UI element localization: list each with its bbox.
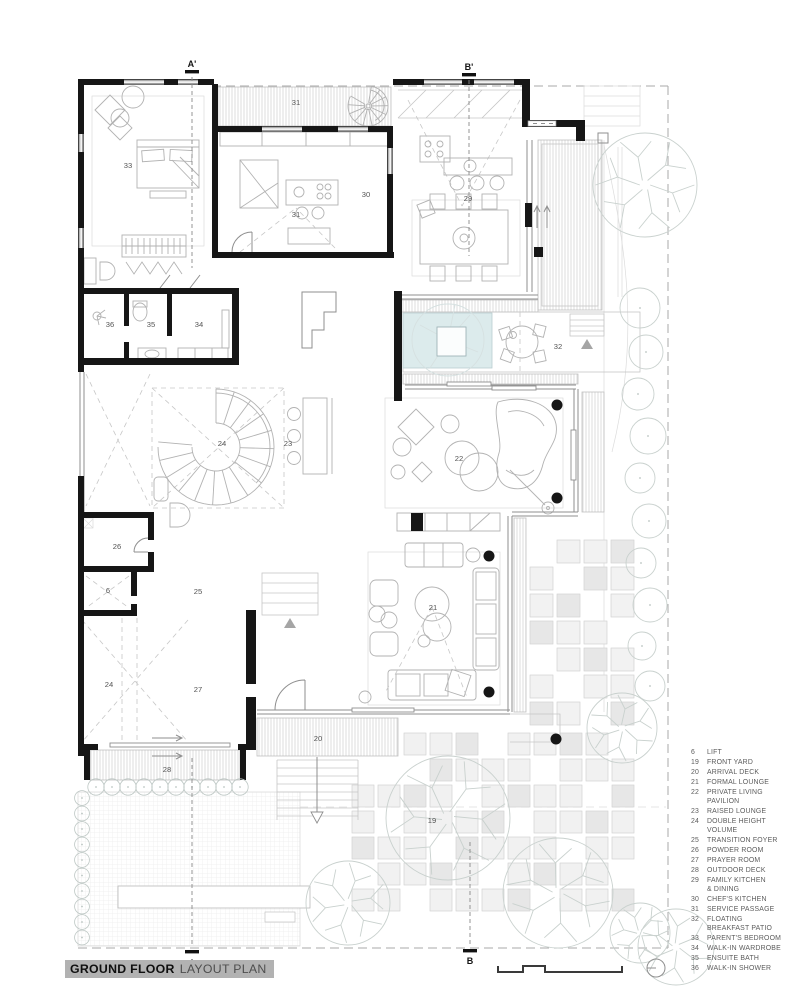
floating-steps bbox=[302, 292, 336, 348]
room-label-30: 30 bbox=[362, 190, 370, 199]
spiral-stairs bbox=[158, 86, 388, 505]
room-label-21: 21 bbox=[429, 603, 437, 612]
legend-item-label: ARRIVAL DECK bbox=[707, 768, 793, 777]
legend-item: 19FRONT YARD bbox=[691, 758, 793, 767]
legend-item: 24DOUBLE HEIGHT VOLUME bbox=[691, 817, 793, 836]
legend-item: 33PARENT'S BEDROOM bbox=[691, 934, 793, 943]
section-letter: B' bbox=[465, 62, 474, 72]
legend-item-label: WALK-IN SHOWER bbox=[707, 964, 793, 973]
room-label-27: 27 bbox=[194, 685, 202, 694]
legend-item-number: 27 bbox=[691, 856, 707, 865]
room-label-24: 24 bbox=[105, 680, 113, 689]
room-label-25: 25 bbox=[194, 587, 202, 596]
room-label-29: 29 bbox=[464, 194, 472, 203]
legend-item-number: 29 bbox=[691, 876, 707, 895]
legend-item-number: 33 bbox=[691, 934, 707, 943]
title-bar: GROUND FLOOR LAYOUT PLAN bbox=[65, 960, 274, 978]
title-bold: GROUND FLOOR bbox=[70, 962, 175, 976]
room-labels: 3331303129363534322423222662521242728201… bbox=[105, 98, 562, 825]
legend-item: 26POWDER ROOM bbox=[691, 846, 793, 855]
legend-item-number: 30 bbox=[691, 895, 707, 904]
legend-item-number: 34 bbox=[691, 944, 707, 953]
legend-item-label: POWDER ROOM bbox=[707, 846, 793, 855]
legend-item: 36WALK-IN SHOWER bbox=[691, 964, 793, 973]
legend-item: 34WALK-IN WARDROBE bbox=[691, 944, 793, 953]
legend-item-label: DOUBLE HEIGHT VOLUME bbox=[707, 817, 793, 836]
legend-item-label: OUTDOOR DECK bbox=[707, 866, 793, 875]
legend-item-number: 6 bbox=[691, 748, 707, 757]
furniture bbox=[82, 86, 563, 744]
legend-item-number: 28 bbox=[691, 866, 707, 875]
breakfast-patio bbox=[403, 304, 640, 376]
legend-item-number: 32 bbox=[691, 915, 707, 934]
room-label-20: 20 bbox=[314, 734, 322, 743]
legend-item: 35ENSUITE BATH bbox=[691, 954, 793, 963]
legend-item: 32FLOATING BREAKFAST PATIO bbox=[691, 915, 793, 934]
section-letter: B bbox=[467, 956, 474, 966]
legend-item-number: 22 bbox=[691, 788, 707, 807]
legend-item-label: TRANSITION FOYER bbox=[707, 836, 793, 845]
living-pavilion-furniture bbox=[385, 398, 563, 531]
legend-item: 31SERVICE PASSAGE bbox=[691, 905, 793, 914]
room-label-35: 35 bbox=[147, 320, 155, 329]
room-label-22: 22 bbox=[455, 454, 463, 463]
section-bar bbox=[185, 950, 199, 953]
room-label-28: 28 bbox=[163, 765, 171, 774]
legend-item-label: RAISED LOUNGE bbox=[707, 807, 793, 816]
legend-item: 27PRAYER ROOM bbox=[691, 856, 793, 865]
legend-item: 23RAISED LOUNGE bbox=[691, 807, 793, 816]
legend-item-number: 25 bbox=[691, 836, 707, 845]
legend-item-number: 35 bbox=[691, 954, 707, 963]
legend-item-label: CHEF'S KITCHEN bbox=[707, 895, 793, 904]
legend-item-label: ENSUITE BATH bbox=[707, 954, 793, 963]
legend-item: 28OUTDOOR DECK bbox=[691, 866, 793, 875]
bath-fixtures bbox=[93, 301, 229, 361]
legend-item-number: 21 bbox=[691, 778, 707, 787]
room-label-34: 34 bbox=[195, 320, 203, 329]
floor-plan-sheet: 3331303129363534322423222662521242728201… bbox=[0, 0, 800, 1000]
legend-item-label: FLOATING BREAKFAST PATIO bbox=[707, 915, 793, 934]
tree-planter bbox=[437, 327, 466, 356]
legend-item-number: 31 bbox=[691, 905, 707, 914]
legend-item: 29FAMILY KITCHEN & DINING bbox=[691, 876, 793, 895]
legend-item-number: 19 bbox=[691, 758, 707, 767]
room-label-31: 31 bbox=[292, 98, 300, 107]
legend-item-label: FAMILY KITCHEN & DINING bbox=[707, 876, 793, 895]
legend-item-label: SERVICE PASSAGE bbox=[707, 905, 793, 914]
room-label-33: 33 bbox=[124, 161, 132, 170]
room-label-31: 31 bbox=[292, 210, 300, 219]
legend-item-label: PRIVATE LIVING PAVILION bbox=[707, 788, 793, 807]
scale-bar bbox=[498, 966, 622, 972]
legend-item-label: FORMAL LOUNGE bbox=[707, 778, 793, 787]
legend-item-label: PRAYER ROOM bbox=[707, 856, 793, 865]
room-label-32: 32 bbox=[554, 342, 562, 351]
section-letter: A' bbox=[188, 59, 197, 69]
patio-table bbox=[499, 324, 546, 363]
legend-item: 30CHEF'S KITCHEN bbox=[691, 895, 793, 904]
legend-item-number: 24 bbox=[691, 817, 707, 836]
floor-plan-drawing: 3331303129363534322423222662521242728201… bbox=[0, 0, 800, 1000]
legend-item-number: 36 bbox=[691, 964, 707, 973]
legend-item-label: LIFT bbox=[707, 748, 793, 757]
legend-item-label: FRONT YARD bbox=[707, 758, 793, 767]
room-label-36: 36 bbox=[106, 320, 114, 329]
legend-item: 21FORMAL LOUNGE bbox=[691, 778, 793, 787]
section-bar bbox=[462, 73, 476, 76]
bedroom-furniture bbox=[84, 86, 204, 284]
legend: 6LIFT19FRONT YARD20ARRIVAL DECK21FORMAL … bbox=[691, 748, 793, 973]
legend-item-number: 20 bbox=[691, 768, 707, 777]
legend-item: 22PRIVATE LIVING PAVILION bbox=[691, 788, 793, 807]
room-label-19: 19 bbox=[428, 816, 436, 825]
walls bbox=[78, 79, 585, 780]
legend-item-number: 23 bbox=[691, 807, 707, 816]
north-indicator bbox=[647, 959, 665, 977]
title-regular: LAYOUT PLAN bbox=[180, 962, 267, 976]
formal-lounge-furniture bbox=[359, 543, 500, 705]
legend-item: 25TRANSITION FOYER bbox=[691, 836, 793, 845]
section-bar bbox=[185, 70, 199, 73]
legend-item: 6LIFT bbox=[691, 748, 793, 757]
room-label-24: 24 bbox=[218, 439, 226, 448]
raised-lounge-furniture bbox=[288, 398, 333, 474]
section-bar bbox=[463, 949, 477, 952]
family-kitchen-furniture bbox=[398, 90, 524, 281]
room-label-23: 23 bbox=[284, 439, 292, 448]
legend-item-label: PARENT'S BEDROOM bbox=[707, 934, 793, 943]
legend-item-label: WALK-IN WARDROBE bbox=[707, 944, 793, 953]
room-label-6: 6 bbox=[106, 586, 110, 595]
room-label-26: 26 bbox=[113, 542, 121, 551]
legend-item: 20ARRIVAL DECK bbox=[691, 768, 793, 777]
legend-item-number: 26 bbox=[691, 846, 707, 855]
